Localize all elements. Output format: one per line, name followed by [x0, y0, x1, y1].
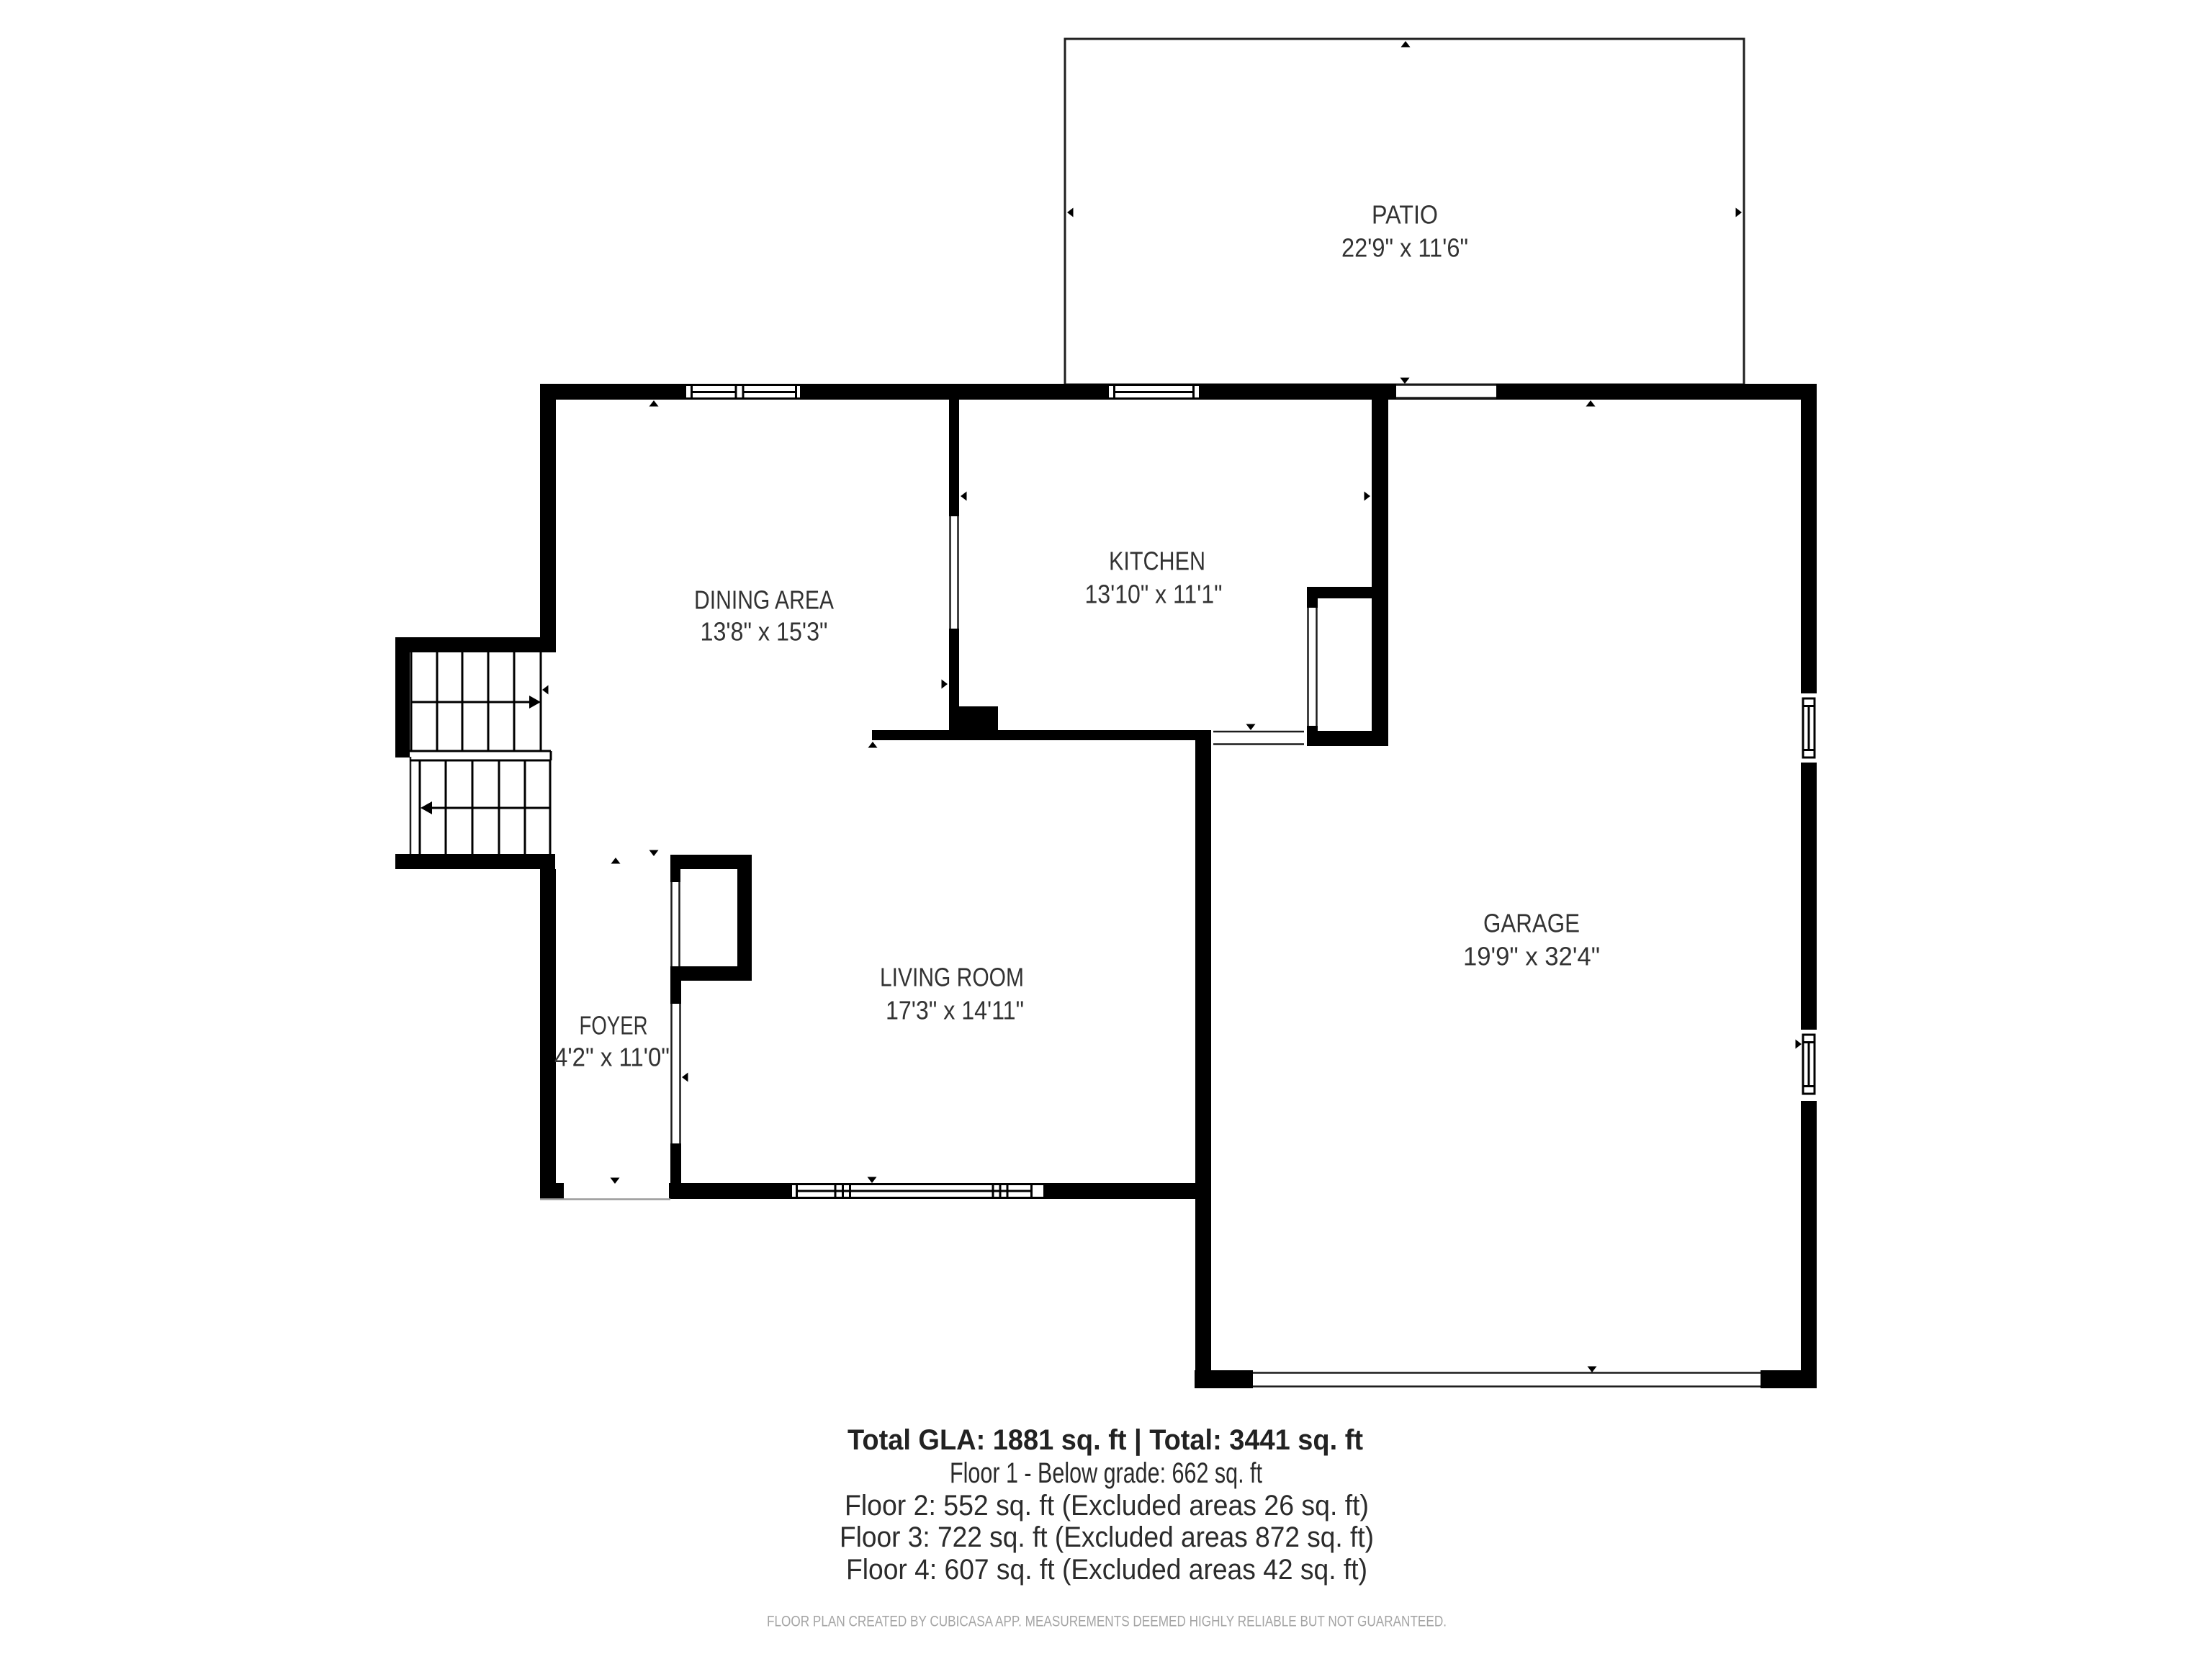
svg-text:17'3" x 14'11": 17'3" x 14'11"	[886, 996, 1024, 1025]
svg-text:DINING AREA: DINING AREA	[694, 585, 834, 615]
svg-text:Floor 1 - Below grade: 662 sq.: Floor 1 - Below grade: 662 sq. ft	[950, 1457, 1262, 1489]
svg-text:LIVING ROOM: LIVING ROOM	[880, 963, 1024, 992]
svg-text:13'10" x 11'1": 13'10" x 11'1"	[1085, 580, 1223, 609]
svg-text:Floor 2: 552 sq. ft (Excluded: Floor 2: 552 sq. ft (Excluded areas 26 s…	[845, 1490, 1369, 1521]
svg-text:KITCHEN: KITCHEN	[1109, 547, 1205, 576]
svg-text:GARAGE: GARAGE	[1483, 909, 1580, 938]
svg-text:FOYER: FOYER	[580, 1011, 648, 1040]
svg-text:FLOOR PLAN CREATED BY CUBICASA: FLOOR PLAN CREATED BY CUBICASA APP. MEAS…	[767, 1614, 1447, 1630]
svg-text:4'2" x 11'0": 4'2" x 11'0"	[554, 1043, 670, 1072]
svg-text:Floor 3: 722 sq. ft (Excluded: Floor 3: 722 sq. ft (Excluded areas 872 …	[840, 1521, 1374, 1553]
svg-text:13'8" x 15'3": 13'8" x 15'3"	[701, 617, 828, 647]
svg-text:22'9" x 11'6": 22'9" x 11'6"	[1341, 233, 1468, 263]
svg-text:19'9" x 32'4": 19'9" x 32'4"	[1463, 942, 1600, 971]
svg-text:PATIO: PATIO	[1372, 200, 1438, 230]
svg-text:Floor 4: 607 sq. ft (Excluded: Floor 4: 607 sq. ft (Excluded areas 42 s…	[846, 1554, 1367, 1586]
svg-text:Total GLA: 1881 sq. ft | Total: Total GLA: 1881 sq. ft | Total: 3441 sq.…	[848, 1424, 1363, 1456]
